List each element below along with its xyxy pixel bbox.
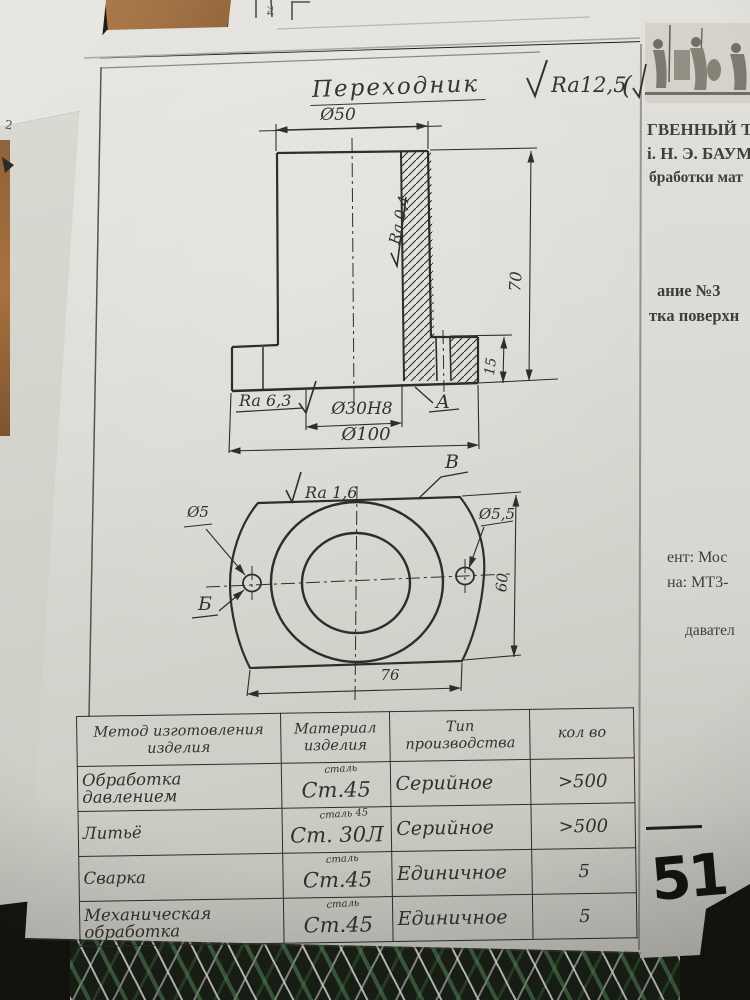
- col-header-method: Метод изготовления изделия: [77, 713, 281, 766]
- student-line2: на: МТ3-: [667, 574, 728, 592]
- cell-method: Сварка: [79, 853, 283, 901]
- material-note: сталь: [324, 763, 358, 776]
- page-number: 51: [648, 840, 728, 914]
- drawing-title: Переходник: [310, 71, 486, 106]
- desk-wood-left-strip: [0, 140, 10, 436]
- spec-table: Метод изготовления изделия Материал изде…: [76, 707, 638, 947]
- cell-method: Литьё: [78, 808, 282, 856]
- photo-scene: ГВЕННЫЙ ТЕ і. Н. Э. БАУМ бработки мат ан…: [0, 0, 750, 1000]
- cell-type: Единичное: [393, 894, 534, 941]
- cell-type: Серийное: [391, 759, 532, 806]
- col-header-type: Тип производства: [390, 709, 531, 761]
- cell-method: Обработка давлением: [77, 763, 281, 811]
- assignment-line1: ание №3: [657, 281, 721, 301]
- cell-material: сталь Ст.45: [283, 897, 394, 944]
- assignment-line2: тка поверхн: [649, 306, 739, 326]
- material-value: Ст.45: [288, 912, 389, 938]
- material-value: Ст. 30Л: [286, 822, 387, 848]
- cell-qty: 5: [532, 848, 636, 895]
- letterhead-engraving: [644, 20, 750, 106]
- cell-qty: >500: [531, 803, 635, 850]
- letterhead-line1: ГВЕННЫЙ ТЕ: [647, 120, 750, 140]
- cell-type: Единичное: [392, 849, 533, 896]
- cell-qty: >500: [531, 758, 635, 805]
- material-value: Ст.45: [287, 867, 388, 893]
- letterhead-line2: і. Н. Э. БАУМ: [647, 144, 750, 164]
- col-header-qty: кол во: [530, 708, 634, 760]
- material-note: сталь: [326, 898, 360, 911]
- student-line1: ент: Мос: [667, 549, 727, 567]
- spec-header-row: Метод изготовления изделия Материал изде…: [77, 708, 635, 767]
- material-note: сталь 45: [319, 807, 368, 821]
- table-row: Механическая обработка сталь Ст.45 Едини…: [79, 893, 637, 947]
- cell-method: Механическая обработка: [79, 898, 283, 946]
- col-header-material: Материал изделия: [280, 712, 391, 764]
- cell-material: сталь Ст.45: [281, 762, 392, 809]
- letterhead-line3: бработки мат: [649, 169, 743, 187]
- material-note: сталь: [325, 853, 359, 866]
- teacher-line: давател: [685, 622, 735, 640]
- material-value: Ст.45: [286, 777, 387, 803]
- cell-type: Серийное: [391, 804, 532, 851]
- cell-material: сталь 45 Ст. 30Л: [282, 807, 393, 854]
- letterhead-rule: [646, 825, 702, 830]
- cell-qty: 5: [533, 893, 637, 940]
- cell-material: сталь Ст.45: [282, 852, 393, 899]
